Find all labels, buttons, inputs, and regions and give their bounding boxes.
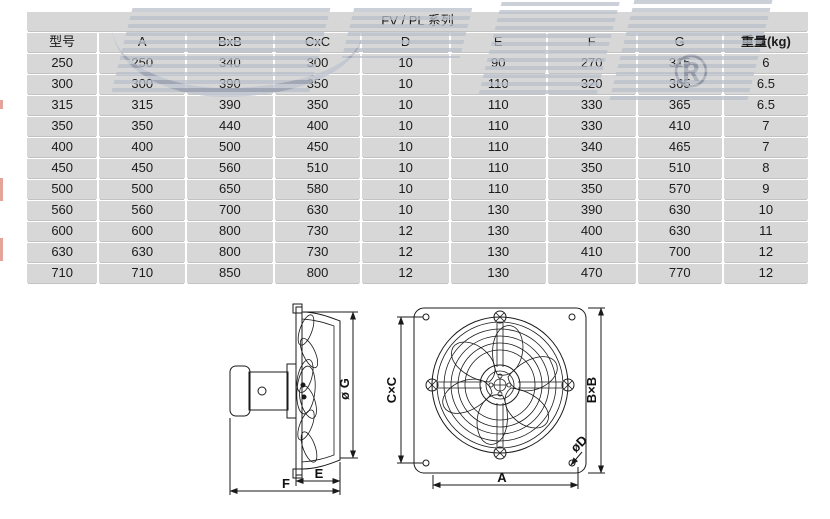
watermark-edge-mark (0, 238, 3, 261)
table-cell: 470 (548, 264, 636, 283)
label-f: F (282, 476, 290, 491)
table-cell: 570 (638, 180, 722, 199)
table-cell: 510 (275, 159, 361, 178)
table-row: 350350440400101103304107 (27, 117, 808, 136)
column-header: CxC (275, 33, 361, 52)
table-cell: 110 (451, 96, 546, 115)
drawing-area: ø G E F (0, 290, 830, 519)
dimension-a: A (433, 467, 578, 489)
dimension-e: E (296, 462, 340, 486)
table-cell: 390 (548, 201, 636, 220)
corner-mounting-holes (423, 314, 575, 466)
watermark-edge-mark (0, 100, 3, 109)
table-cell: 700 (187, 201, 273, 220)
table-cell: 500 (27, 180, 97, 199)
table-cell: 450 (275, 138, 361, 157)
table-row: 315315390350101103303656.5 (27, 96, 808, 115)
table-cell: 10 (362, 96, 448, 115)
table-cell: 850 (187, 264, 273, 283)
table-cell: 12 (362, 222, 448, 241)
table-cell: 700 (638, 243, 722, 262)
table-cell: 350 (275, 96, 361, 115)
fan-hub (480, 365, 520, 405)
column-header: BxB (187, 33, 273, 52)
table-cell: 10 (362, 117, 448, 136)
table-cell: 7 (724, 117, 808, 136)
table-cell: 650 (187, 180, 273, 199)
table-cell: 130 (451, 264, 546, 283)
label-e: E (315, 466, 324, 481)
table-cell: 6.5 (724, 96, 808, 115)
table-cell: 560 (99, 201, 185, 220)
table-cell: 330 (548, 96, 636, 115)
table-cell: 10 (362, 138, 448, 157)
table-row: 25025034030010902703156 (27, 54, 808, 73)
table-cell: 250 (27, 54, 97, 73)
table-cell: 130 (451, 201, 546, 220)
spec-table-wrap: FV / PL 系列 型号ABxBCxCDEFG重量(kg) 250250340… (25, 10, 810, 285)
table-cell: 6.5 (724, 75, 808, 94)
table-cell: 315 (27, 96, 97, 115)
table-cell: 580 (275, 180, 361, 199)
table-cell: 730 (275, 222, 361, 241)
table-cell: 390 (187, 75, 273, 94)
table-cell: 12 (362, 243, 448, 262)
dimension-cxc: C×C (384, 317, 423, 463)
table-cell: 10 (362, 54, 448, 73)
table-cell: 440 (187, 117, 273, 136)
column-header: G (638, 33, 722, 52)
table-cell: 600 (27, 222, 97, 241)
table-cell: 630 (638, 222, 722, 241)
column-header: D (362, 33, 448, 52)
watermark-edge-mark (0, 178, 3, 201)
table-cell: 400 (548, 222, 636, 241)
table-cell: 90 (451, 54, 546, 73)
table-cell: 7 (724, 138, 808, 157)
table-cell: 300 (99, 75, 185, 94)
motor (230, 366, 288, 416)
dimension-f: F (230, 418, 340, 495)
table-cell: 350 (548, 180, 636, 199)
table-cell: 600 (99, 222, 185, 241)
spec-table-header-row: 型号ABxBCxCDEFG重量(kg) (27, 33, 808, 52)
table-cell: 630 (27, 243, 97, 262)
spec-table-body: 2502503403001090270315630030039035010110… (27, 54, 808, 283)
table-title-row: FV / PL 系列 (27, 12, 808, 31)
table-row: 6306308007301213041070012 (27, 243, 808, 262)
table-cell: 800 (275, 264, 361, 283)
table-cell: 710 (99, 264, 185, 283)
table-cell: 250 (99, 54, 185, 73)
table-cell: 6 (724, 54, 808, 73)
spec-sheet-page: ® FV / PL 系列 型号ABxBCxCDEFG重量(kg) 2502503… (0, 0, 830, 519)
table-cell: 110 (451, 138, 546, 157)
table-cell: 110 (451, 117, 546, 136)
table-cell: 400 (275, 117, 361, 136)
table-cell: 270 (548, 54, 636, 73)
label-cxc: C×C (384, 376, 399, 403)
column-header: 重量(kg) (724, 33, 808, 52)
table-cell: 340 (187, 54, 273, 73)
table-cell: 110 (451, 75, 546, 94)
table-cell: 11 (724, 222, 808, 241)
table-cell: 500 (187, 138, 273, 157)
table-cell: 12 (724, 243, 808, 262)
table-cell: 320 (548, 75, 636, 94)
table-row: 7107108508001213047077012 (27, 264, 808, 283)
table-cell: 300 (275, 54, 361, 73)
column-header: 型号 (27, 33, 97, 52)
table-cell: 110 (451, 180, 546, 199)
table-cell: 10 (362, 75, 448, 94)
table-row: 300300390350101103203656.5 (27, 75, 808, 94)
table-row: 500500650580101103505709 (27, 180, 808, 199)
dimension-bxb: B×B (584, 308, 605, 473)
table-cell: 9 (724, 180, 808, 199)
table-cell: 410 (548, 243, 636, 262)
table-cell: 10 (724, 201, 808, 220)
spec-table: FV / PL 系列 型号ABxBCxCDEFG重量(kg) 250250340… (25, 10, 810, 285)
label-diameter-d: øD (567, 432, 590, 455)
impeller-side (294, 313, 321, 464)
table-cell: 400 (27, 138, 97, 157)
table-cell: 410 (638, 117, 722, 136)
label-a: A (497, 470, 507, 485)
table-row: 450450560510101103505108 (27, 159, 808, 178)
table-cell: 10 (362, 159, 448, 178)
table-cell: 400 (99, 138, 185, 157)
table-cell: 330 (548, 117, 636, 136)
table-cell: 10 (362, 180, 448, 199)
table-cell: 12 (362, 264, 448, 283)
bell-mouth-flange (302, 312, 340, 469)
table-cell: 450 (99, 159, 185, 178)
table-cell: 800 (187, 243, 273, 262)
table-cell: 630 (99, 243, 185, 262)
table-cell: 350 (27, 117, 97, 136)
fan-front-view: C×C B×B A øD (384, 308, 605, 489)
table-cell: 315 (638, 54, 722, 73)
table-cell: 450 (27, 159, 97, 178)
column-header: F (548, 33, 636, 52)
table-cell: 130 (451, 243, 546, 262)
table-cell: 340 (548, 138, 636, 157)
mounting-plate-edge (293, 304, 302, 478)
table-cell: 390 (187, 96, 273, 115)
table-cell: 465 (638, 138, 722, 157)
table-cell: 350 (99, 117, 185, 136)
table-cell: 630 (638, 201, 722, 220)
table-cell: 500 (99, 180, 185, 199)
table-row: 6006008007301213040063011 (27, 222, 808, 241)
table-cell: 730 (275, 243, 361, 262)
table-cell: 710 (27, 264, 97, 283)
series-title: FV / PL 系列 (27, 12, 808, 31)
table-cell: 560 (187, 159, 273, 178)
table-cell: 12 (724, 264, 808, 283)
table-cell: 110 (451, 159, 546, 178)
table-cell: 300 (27, 75, 97, 94)
table-cell: 8 (724, 159, 808, 178)
table-cell: 560 (27, 201, 97, 220)
column-header: E (451, 33, 546, 52)
table-cell: 800 (187, 222, 273, 241)
table-row: 5605607006301013039063010 (27, 201, 808, 220)
label-diameter-g: ø G (337, 378, 352, 400)
table-cell: 510 (638, 159, 722, 178)
table-cell: 315 (99, 96, 185, 115)
column-header: A (99, 33, 185, 52)
table-cell: 365 (638, 96, 722, 115)
table-cell: 630 (275, 201, 361, 220)
table-cell: 130 (451, 222, 546, 241)
fan-side-view: ø G E F (230, 304, 358, 495)
table-cell: 365 (638, 75, 722, 94)
table-row: 400400500450101103404657 (27, 138, 808, 157)
table-cell: 350 (275, 75, 361, 94)
label-bxb: B×B (584, 377, 599, 403)
table-cell: 770 (638, 264, 722, 283)
table-cell: 350 (548, 159, 636, 178)
table-cell: 10 (362, 201, 448, 220)
